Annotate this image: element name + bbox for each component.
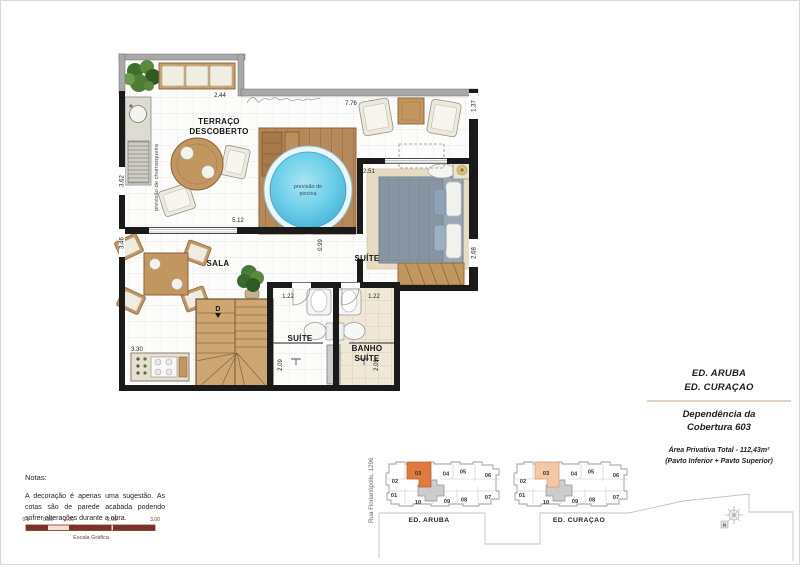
double-bed: [379, 177, 463, 263]
dim-suite-top: 2.51: [363, 169, 375, 175]
unit-08: 08: [461, 498, 468, 504]
title-unit-line1: Dependência da: [631, 408, 800, 422]
building-outline-curacao: [514, 462, 627, 506]
unit-10: 10: [415, 500, 421, 506]
pool: previsão de piscina: [264, 146, 352, 234]
bed-end-bench: [398, 263, 464, 285]
dim-terrace-top: 7.76: [345, 101, 357, 107]
stair-direction-label: D: [215, 306, 220, 313]
building-outline: [386, 462, 499, 506]
building-label-aruba: ED. ARUBA: [408, 517, 449, 524]
unit-09: 09: [572, 499, 579, 505]
unit-10: 10: [543, 500, 549, 506]
dim-terrace-right: 1.37: [472, 100, 478, 112]
dim-left-upper: 3.62: [120, 175, 126, 187]
dim-bath1-depth: 2.09: [278, 359, 284, 371]
street-label: Rua Florianópolis, 1296: [368, 457, 375, 523]
dim-kitchen: 3.30: [131, 347, 143, 353]
dim-bath1: 1.22: [282, 294, 294, 300]
unit-03: 03: [543, 471, 550, 477]
notes-body: A decoração é apenas uma sugestão. As co…: [25, 492, 165, 525]
unit-04: 04: [443, 472, 450, 478]
title-block: ED. ARUBA ED. CURAÇAO Dependência da Cob…: [631, 367, 800, 467]
title-building-1: ED. ARUBA: [631, 367, 800, 381]
title-area-note: (Pavto Inferior + Pavto Superior): [631, 457, 800, 468]
floor-plan-sheet: previsão de piscina: [0, 0, 800, 565]
unit-01: 01: [519, 493, 526, 499]
room-banho-line2: SUÍTE: [354, 354, 379, 363]
unit-02: 02: [520, 479, 526, 485]
room-suite-bath: SUÍTE: [287, 334, 312, 343]
notes-heading: Notas:: [25, 473, 165, 482]
dim-suite-right: 2.68: [472, 247, 478, 259]
pool-label-line2: piscina: [299, 191, 317, 197]
unit-07: 07: [613, 495, 619, 501]
title-building-2: ED. CURAÇAO: [631, 381, 800, 395]
terrace-bench: [159, 63, 235, 89]
dim-left-lower: 3.46: [120, 237, 126, 249]
title-area: Área Privativa Total - 112,43m²: [631, 446, 800, 457]
building-label-curacao: ED. CURAÇAO: [553, 517, 605, 524]
staircase: [196, 299, 273, 387]
unit-09: 09: [444, 499, 451, 505]
room-terraco-line1: TERRAÇO: [198, 117, 240, 126]
unit-08: 08: [589, 498, 596, 504]
unit-06: 06: [485, 473, 492, 479]
unit-07: 07: [485, 495, 491, 501]
unit-01: 01: [391, 493, 398, 499]
room-sala: SALA: [207, 259, 230, 268]
notes-block: Notas: A decoração é apenas uma sugestão…: [25, 473, 165, 525]
dim-bath2: 1.22: [368, 294, 380, 300]
scale-caption: Escala Gráfica: [73, 535, 110, 541]
barbecue-label: previsão de churrasqueira: [154, 143, 160, 211]
unit-05: 05: [460, 470, 467, 476]
unit-03: 03: [415, 471, 422, 477]
unit-05: 05: [588, 470, 595, 476]
dim-niche: 2.44: [214, 93, 226, 99]
unit-04: 04: [571, 472, 578, 478]
barbecue-counter: [125, 97, 151, 185]
title-divider: [647, 400, 791, 402]
unit-02: 02: [392, 479, 398, 485]
room-suite: SUÍTE: [354, 254, 379, 263]
title-unit-line2: Cobertura 603: [631, 421, 800, 435]
dim-hall: 0.99: [318, 239, 324, 251]
room-terraco-line2: DESCOBERTO: [189, 127, 248, 136]
north-label: N: [723, 523, 726, 528]
room-banho-line1: BANHO: [352, 344, 383, 353]
kitchen-counter: [131, 353, 189, 381]
pool-label-line1: previsão de: [294, 184, 322, 190]
dim-sala-top: 5.12: [232, 218, 244, 224]
unit-06: 06: [613, 473, 620, 479]
